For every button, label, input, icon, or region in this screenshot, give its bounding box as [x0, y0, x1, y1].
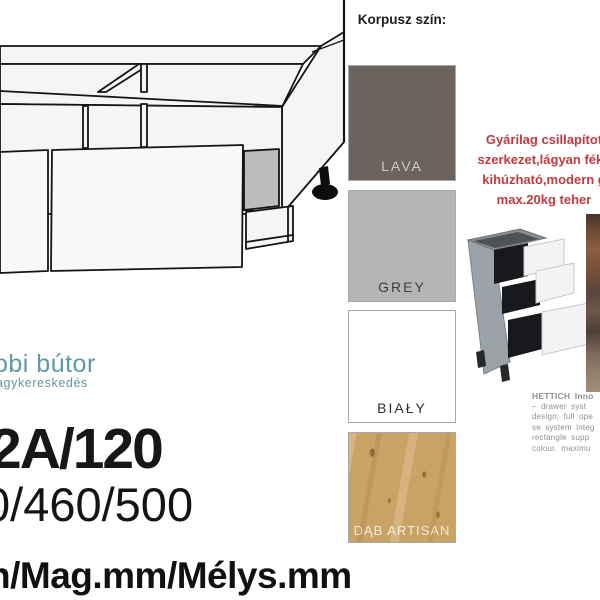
- hettich-description: HETTICH Inno – drawer syst design, full …: [532, 391, 600, 455]
- hettich-line: design, full ope: [532, 412, 600, 423]
- promo-line: Gyárilag csillapítot: [455, 130, 600, 150]
- product-code: 2A/120: [0, 421, 162, 478]
- swatch-bialy: BIAŁY: [348, 310, 456, 423]
- product-dimensions: 0/460/500: [0, 481, 193, 528]
- swatch-dab-artisan: DĄB ARTISAN: [348, 432, 456, 543]
- swatch-lava: LAVA: [348, 65, 456, 181]
- promo-text: Gyárilag csillapítot szerkezet,lágyan fé…: [455, 130, 600, 210]
- hettich-line: se system integ: [532, 423, 600, 434]
- hettich-line: rectangle supp: [532, 433, 600, 444]
- cabinet-render-icon: [460, 210, 592, 402]
- promo-line: kihúzható,modern g: [455, 170, 600, 190]
- swatch-bialy-label: BIAŁY: [349, 401, 455, 422]
- hettich-line: colour. maximu: [532, 444, 600, 455]
- swatch-grey-label: GREY: [349, 280, 455, 301]
- promo-line: szerkezet,lágyan féke: [455, 150, 600, 170]
- dimension-caption: n/Mag.mm/Mélys.mm: [0, 557, 352, 594]
- swatch-dab-artisan-label: DĄB ARTISAN: [349, 524, 455, 542]
- logo-name: obi bútor: [0, 352, 96, 377]
- catalog-sheet: Korpusz szín: LAVA GREY BIAŁY DĄB ARTISA…: [0, 0, 600, 600]
- swatch-lava-label: LAVA: [349, 159, 455, 180]
- corpus-color-header: Korpusz szín:: [348, 12, 456, 27]
- promo-line: max.20kg teher: [455, 190, 600, 210]
- hettich-line: – drawer syst: [532, 402, 600, 413]
- hettich-title: HETTICH Inno: [532, 391, 600, 402]
- logo-tagline: agykereskedés: [0, 377, 88, 390]
- cabinet-technical-drawing-icon: [0, 0, 346, 320]
- wood-panel-photo: [586, 214, 600, 392]
- swatch-grey: GREY: [348, 190, 456, 302]
